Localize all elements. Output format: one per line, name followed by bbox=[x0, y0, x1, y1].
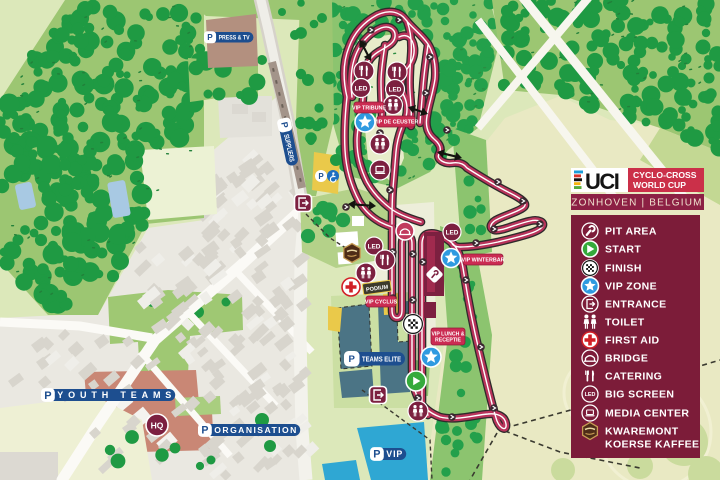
svg-text:LED: LED bbox=[585, 392, 596, 398]
svg-text:P: P bbox=[318, 172, 324, 181]
svg-text:VIP LUNCH &: VIP LUNCH & bbox=[431, 331, 464, 337]
svg-text:START: START bbox=[605, 244, 641, 256]
svg-text:P: P bbox=[207, 33, 213, 42]
svg-text:TEAMS ELITE: TEAMS ELITE bbox=[362, 354, 401, 363]
svg-text:YOUTH TEAMS: YOUTH TEAMS bbox=[57, 390, 171, 400]
svg-text:ZONHOVEN | BELGIUM: ZONHOVEN | BELGIUM bbox=[571, 198, 702, 209]
svg-text:MEDIA CENTER: MEDIA CENTER bbox=[605, 408, 689, 420]
svg-text:BIG SCREEN: BIG SCREEN bbox=[605, 389, 674, 401]
svg-text:VIP CYCLUS: VIP CYCLUS bbox=[365, 299, 398, 305]
svg-text:WORLD CUP: WORLD CUP bbox=[633, 180, 686, 190]
svg-text:FINISH: FINISH bbox=[605, 263, 642, 275]
svg-text:P: P bbox=[44, 390, 51, 402]
svg-text:VIP TRIBUNE: VIP TRIBUNE bbox=[352, 105, 386, 111]
svg-text:PIT AREA: PIT AREA bbox=[605, 226, 657, 238]
svg-text:LED: LED bbox=[446, 229, 459, 236]
svg-text:CYCLO-CROSS: CYCLO-CROSS bbox=[633, 170, 697, 180]
svg-text:VIP DE CEUSTER: VIP DE CEUSTER bbox=[374, 119, 419, 125]
svg-text:PRESS & TV: PRESS & TV bbox=[219, 34, 251, 41]
svg-text:LED: LED bbox=[389, 86, 402, 93]
svg-text:KWAREMONT: KWAREMONT bbox=[605, 426, 679, 438]
svg-text:TOILET: TOILET bbox=[605, 317, 645, 329]
svg-text:RECEPTIE: RECEPTIE bbox=[435, 338, 461, 344]
svg-text:P: P bbox=[201, 425, 208, 437]
svg-text:P: P bbox=[373, 449, 380, 461]
svg-text:ORGANISATION: ORGANISATION bbox=[214, 425, 296, 435]
svg-text:KOERSE KAFFEE: KOERSE KAFFEE bbox=[605, 439, 699, 451]
svg-text:P: P bbox=[349, 354, 356, 365]
svg-text:UCI: UCI bbox=[585, 169, 619, 194]
svg-text:LED: LED bbox=[368, 243, 381, 250]
svg-text:VIP WINTERBAR: VIP WINTERBAR bbox=[461, 257, 504, 263]
svg-text:VIP: VIP bbox=[386, 449, 402, 459]
svg-text:VIP ZONE: VIP ZONE bbox=[605, 281, 657, 293]
svg-text:FIRST AID: FIRST AID bbox=[605, 335, 660, 347]
svg-text:BRIDGE: BRIDGE bbox=[605, 353, 648, 365]
svg-text:HQ: HQ bbox=[151, 421, 164, 431]
svg-text:CATERING: CATERING bbox=[605, 371, 662, 383]
svg-text:LED: LED bbox=[355, 85, 368, 92]
svg-text:ENTRANCE: ENTRANCE bbox=[605, 299, 667, 311]
